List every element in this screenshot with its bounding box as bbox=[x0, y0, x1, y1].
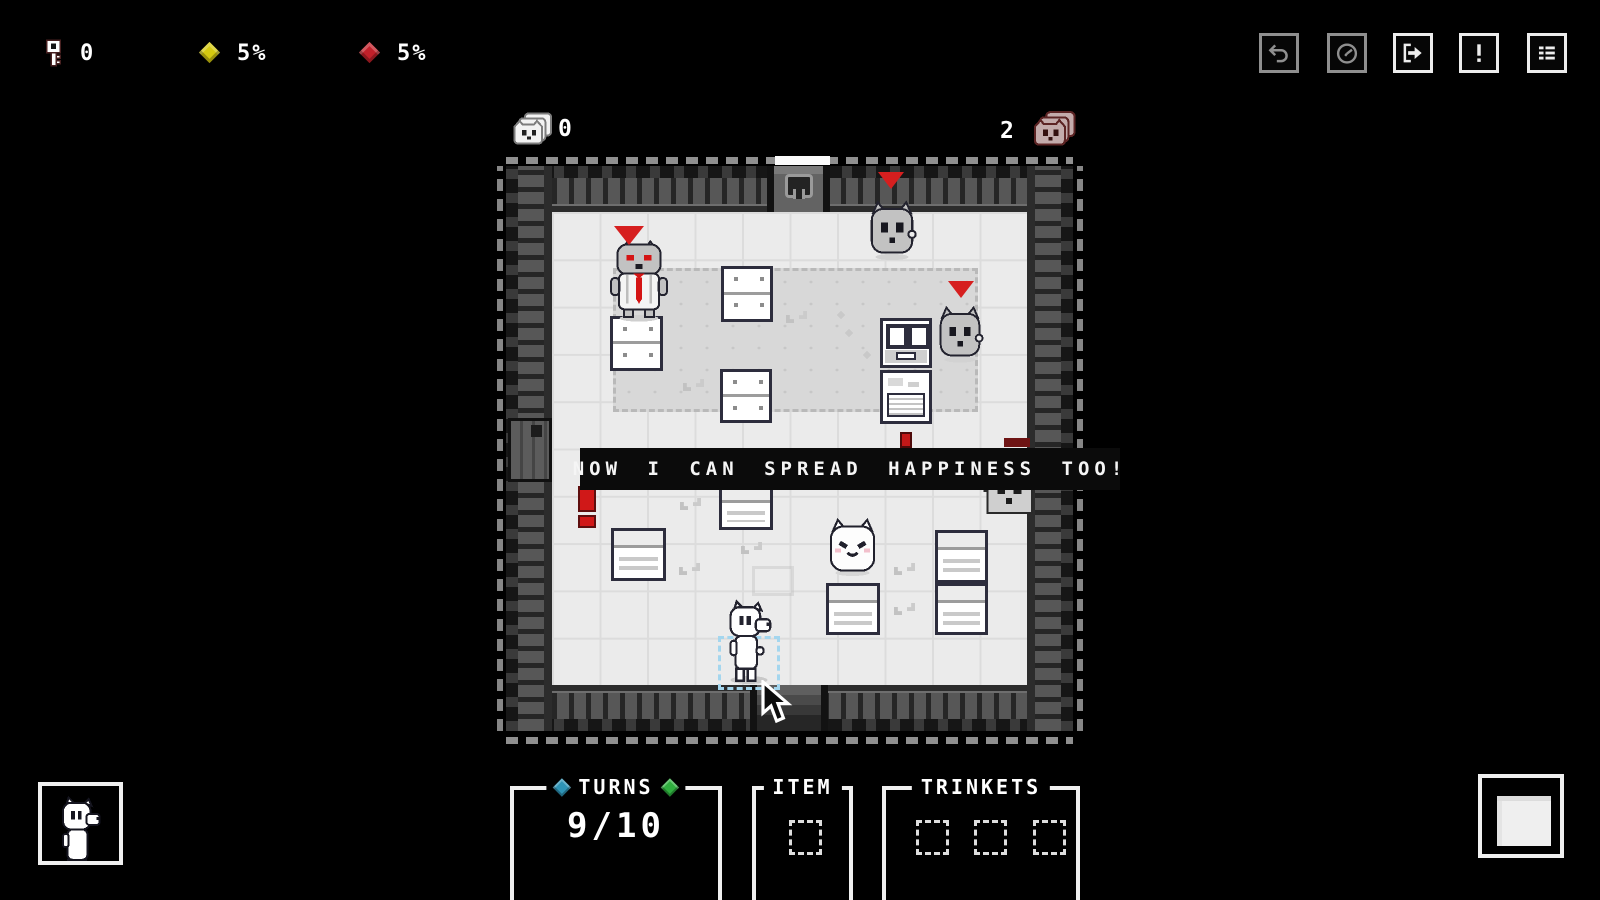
dresser[interactable] bbox=[721, 266, 773, 322]
item-label: ITEM bbox=[772, 775, 832, 799]
turns-panel: TURNS 9/10 bbox=[510, 786, 722, 900]
happy-cat[interactable] bbox=[825, 518, 880, 580]
trinkets-title: TRINKETS bbox=[912, 775, 1050, 799]
bed[interactable] bbox=[611, 528, 666, 581]
turns-label: TURNS bbox=[578, 775, 653, 799]
cat-stack-icon bbox=[512, 111, 554, 153]
cats-remaining-count: 2 bbox=[1000, 118, 1016, 144]
dialog-text: NOW I CAN SPREAD HAPPINESS TOO! bbox=[573, 458, 1128, 480]
dresser[interactable] bbox=[720, 369, 772, 423]
player-portrait bbox=[56, 794, 106, 865]
red-marker bbox=[900, 432, 912, 448]
key-count: 0 bbox=[80, 41, 95, 66]
exit-arrow-icon bbox=[1400, 40, 1426, 66]
timer-button[interactable] bbox=[1327, 33, 1367, 73]
diamond-blue-icon bbox=[553, 778, 571, 796]
enemy-cat[interactable] bbox=[864, 200, 920, 264]
turns-value: 9/10 bbox=[514, 806, 718, 846]
room-dash-left bbox=[497, 166, 503, 731]
item-panel: ITEM bbox=[752, 786, 853, 900]
paw-mark bbox=[741, 541, 767, 556]
minimap-room bbox=[1497, 796, 1551, 846]
paw-mark bbox=[786, 310, 812, 325]
keyhole-icon bbox=[785, 174, 813, 198]
red-triangle-marker bbox=[614, 226, 644, 245]
diamond-red-icon bbox=[359, 42, 380, 63]
ghost-tile bbox=[752, 566, 794, 596]
game-screen: 0 5% 5% bbox=[0, 0, 1600, 900]
red-exclamation-marker bbox=[578, 486, 596, 528]
mouse-cursor bbox=[757, 680, 793, 730]
desk[interactable] bbox=[880, 370, 932, 424]
paw-mark bbox=[680, 497, 706, 512]
bed[interactable] bbox=[826, 583, 880, 635]
door-marker-dash bbox=[775, 156, 830, 165]
turns-title: TURNS bbox=[546, 775, 685, 799]
bed[interactable] bbox=[719, 486, 773, 530]
red-bar-marker bbox=[1004, 438, 1030, 447]
paw-mark bbox=[894, 602, 920, 617]
undo-button[interactable] bbox=[1259, 33, 1299, 73]
dialog-banner: NOW I CAN SPREAD HAPPINESS TOO! bbox=[580, 448, 1120, 490]
room-dash-bottom bbox=[506, 737, 1073, 744]
trinkets-label: TRINKETS bbox=[921, 775, 1041, 799]
undo-icon bbox=[1266, 40, 1292, 66]
cats-saved-count: 0 bbox=[558, 116, 574, 142]
paw-mark bbox=[683, 378, 709, 393]
minimap-box[interactable] bbox=[1478, 774, 1564, 858]
red-triangle-marker bbox=[878, 172, 904, 189]
clock-icon bbox=[1334, 40, 1360, 66]
key-icon bbox=[44, 38, 65, 72]
chest[interactable] bbox=[880, 318, 932, 368]
trinkets-panel: TRINKETS bbox=[882, 786, 1080, 900]
item-slot[interactable] bbox=[789, 820, 822, 855]
paw-mark bbox=[894, 562, 920, 577]
cat-stack-red-icon bbox=[1032, 110, 1078, 154]
diamond-yellow-icon bbox=[199, 42, 220, 63]
boss-cat[interactable] bbox=[600, 240, 678, 326]
end-turn-button[interactable] bbox=[1393, 33, 1433, 73]
locked-door-top[interactable] bbox=[767, 166, 830, 212]
diamond-green-icon bbox=[661, 778, 679, 796]
paw-mark bbox=[679, 562, 705, 577]
item-title: ITEM bbox=[763, 775, 841, 799]
player-dog[interactable] bbox=[723, 598, 777, 690]
red-triangle-marker bbox=[948, 281, 974, 298]
door-left[interactable] bbox=[508, 418, 552, 482]
exclamation-icon bbox=[1466, 40, 1492, 66]
bed[interactable] bbox=[935, 530, 988, 583]
bed[interactable] bbox=[935, 583, 988, 635]
enemy-cat[interactable] bbox=[935, 305, 985, 367]
menu-button[interactable] bbox=[1527, 33, 1567, 73]
list-icon bbox=[1534, 40, 1560, 66]
red-stat-value: 5% bbox=[397, 41, 428, 66]
alert-button[interactable] bbox=[1459, 33, 1499, 73]
trinket-slot[interactable] bbox=[974, 820, 1007, 855]
yellow-stat-value: 5% bbox=[237, 41, 268, 66]
trinket-slot[interactable] bbox=[916, 820, 949, 855]
player-portrait-box[interactable] bbox=[38, 782, 123, 865]
trinket-slot[interactable] bbox=[1033, 820, 1066, 855]
